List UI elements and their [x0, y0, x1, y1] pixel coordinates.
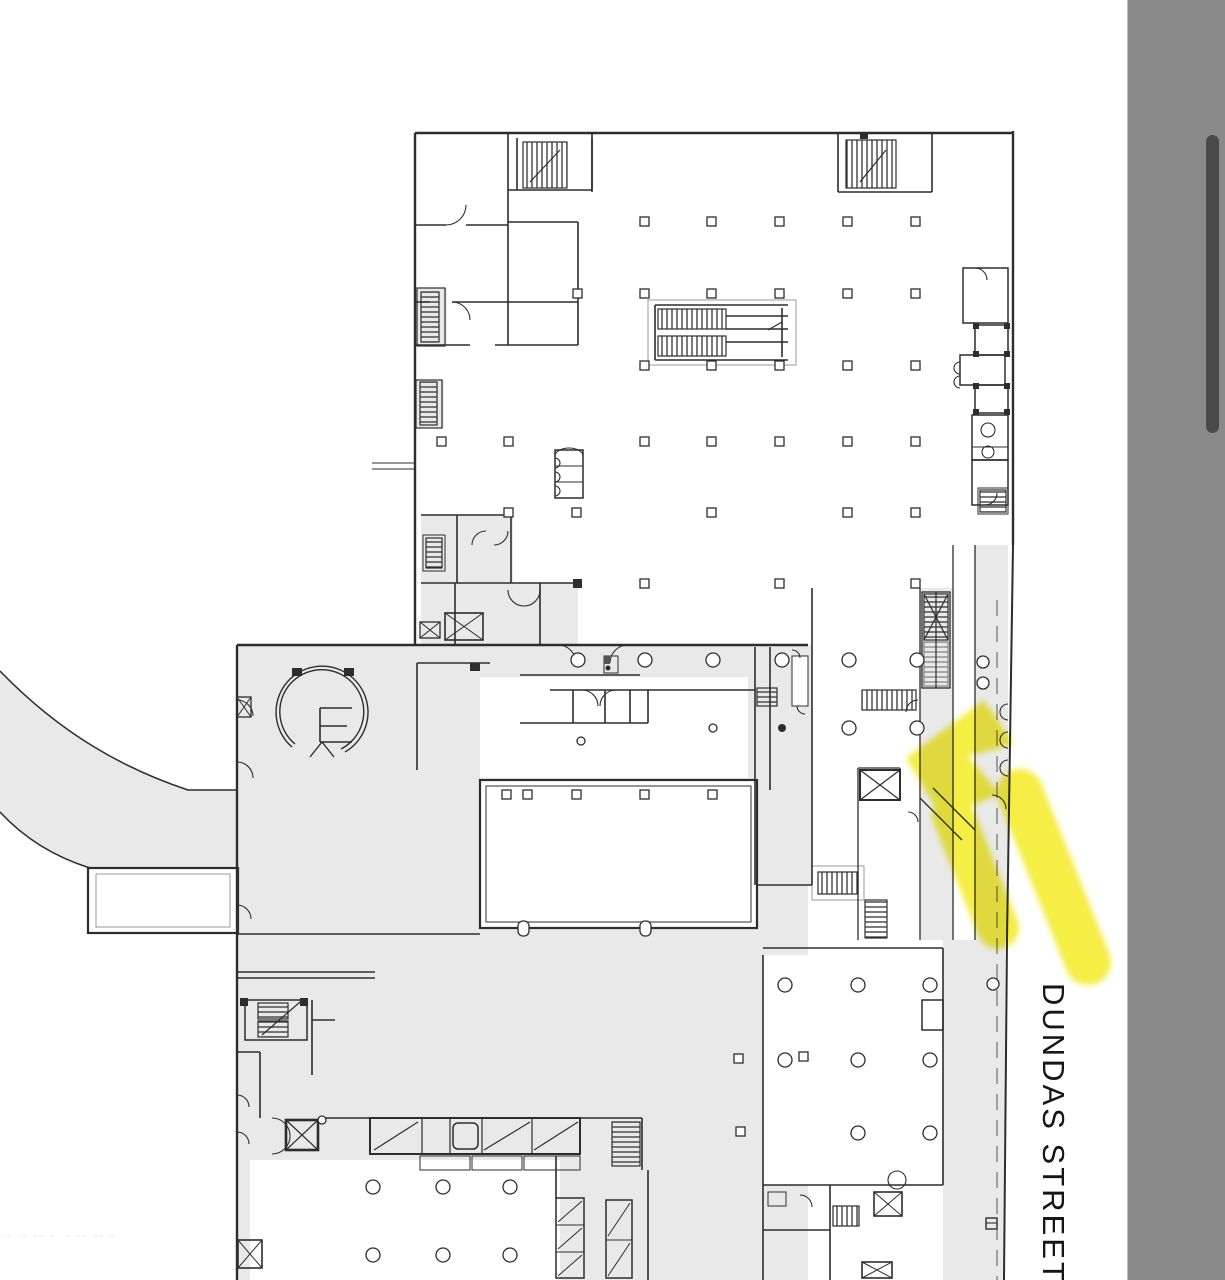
area-fills	[0, 133, 1013, 1280]
floor-plan-svg: DUNDAS STREET W	[0, 0, 1128, 1280]
street-label: DUNDAS STREET W	[1036, 983, 1071, 1280]
viewer-viewport: DUNDAS STREET W ·– ·– –– – ·– –– –– –	[0, 0, 1225, 1280]
scrollbar-track[interactable]	[1127, 0, 1225, 1280]
floor-plan-image: DUNDAS STREET W	[0, 0, 1128, 1280]
faint-street-label: ·– ·– –– – ·– –– –– –	[2, 1231, 117, 1240]
scrollbar-thumb[interactable]	[1206, 135, 1219, 433]
